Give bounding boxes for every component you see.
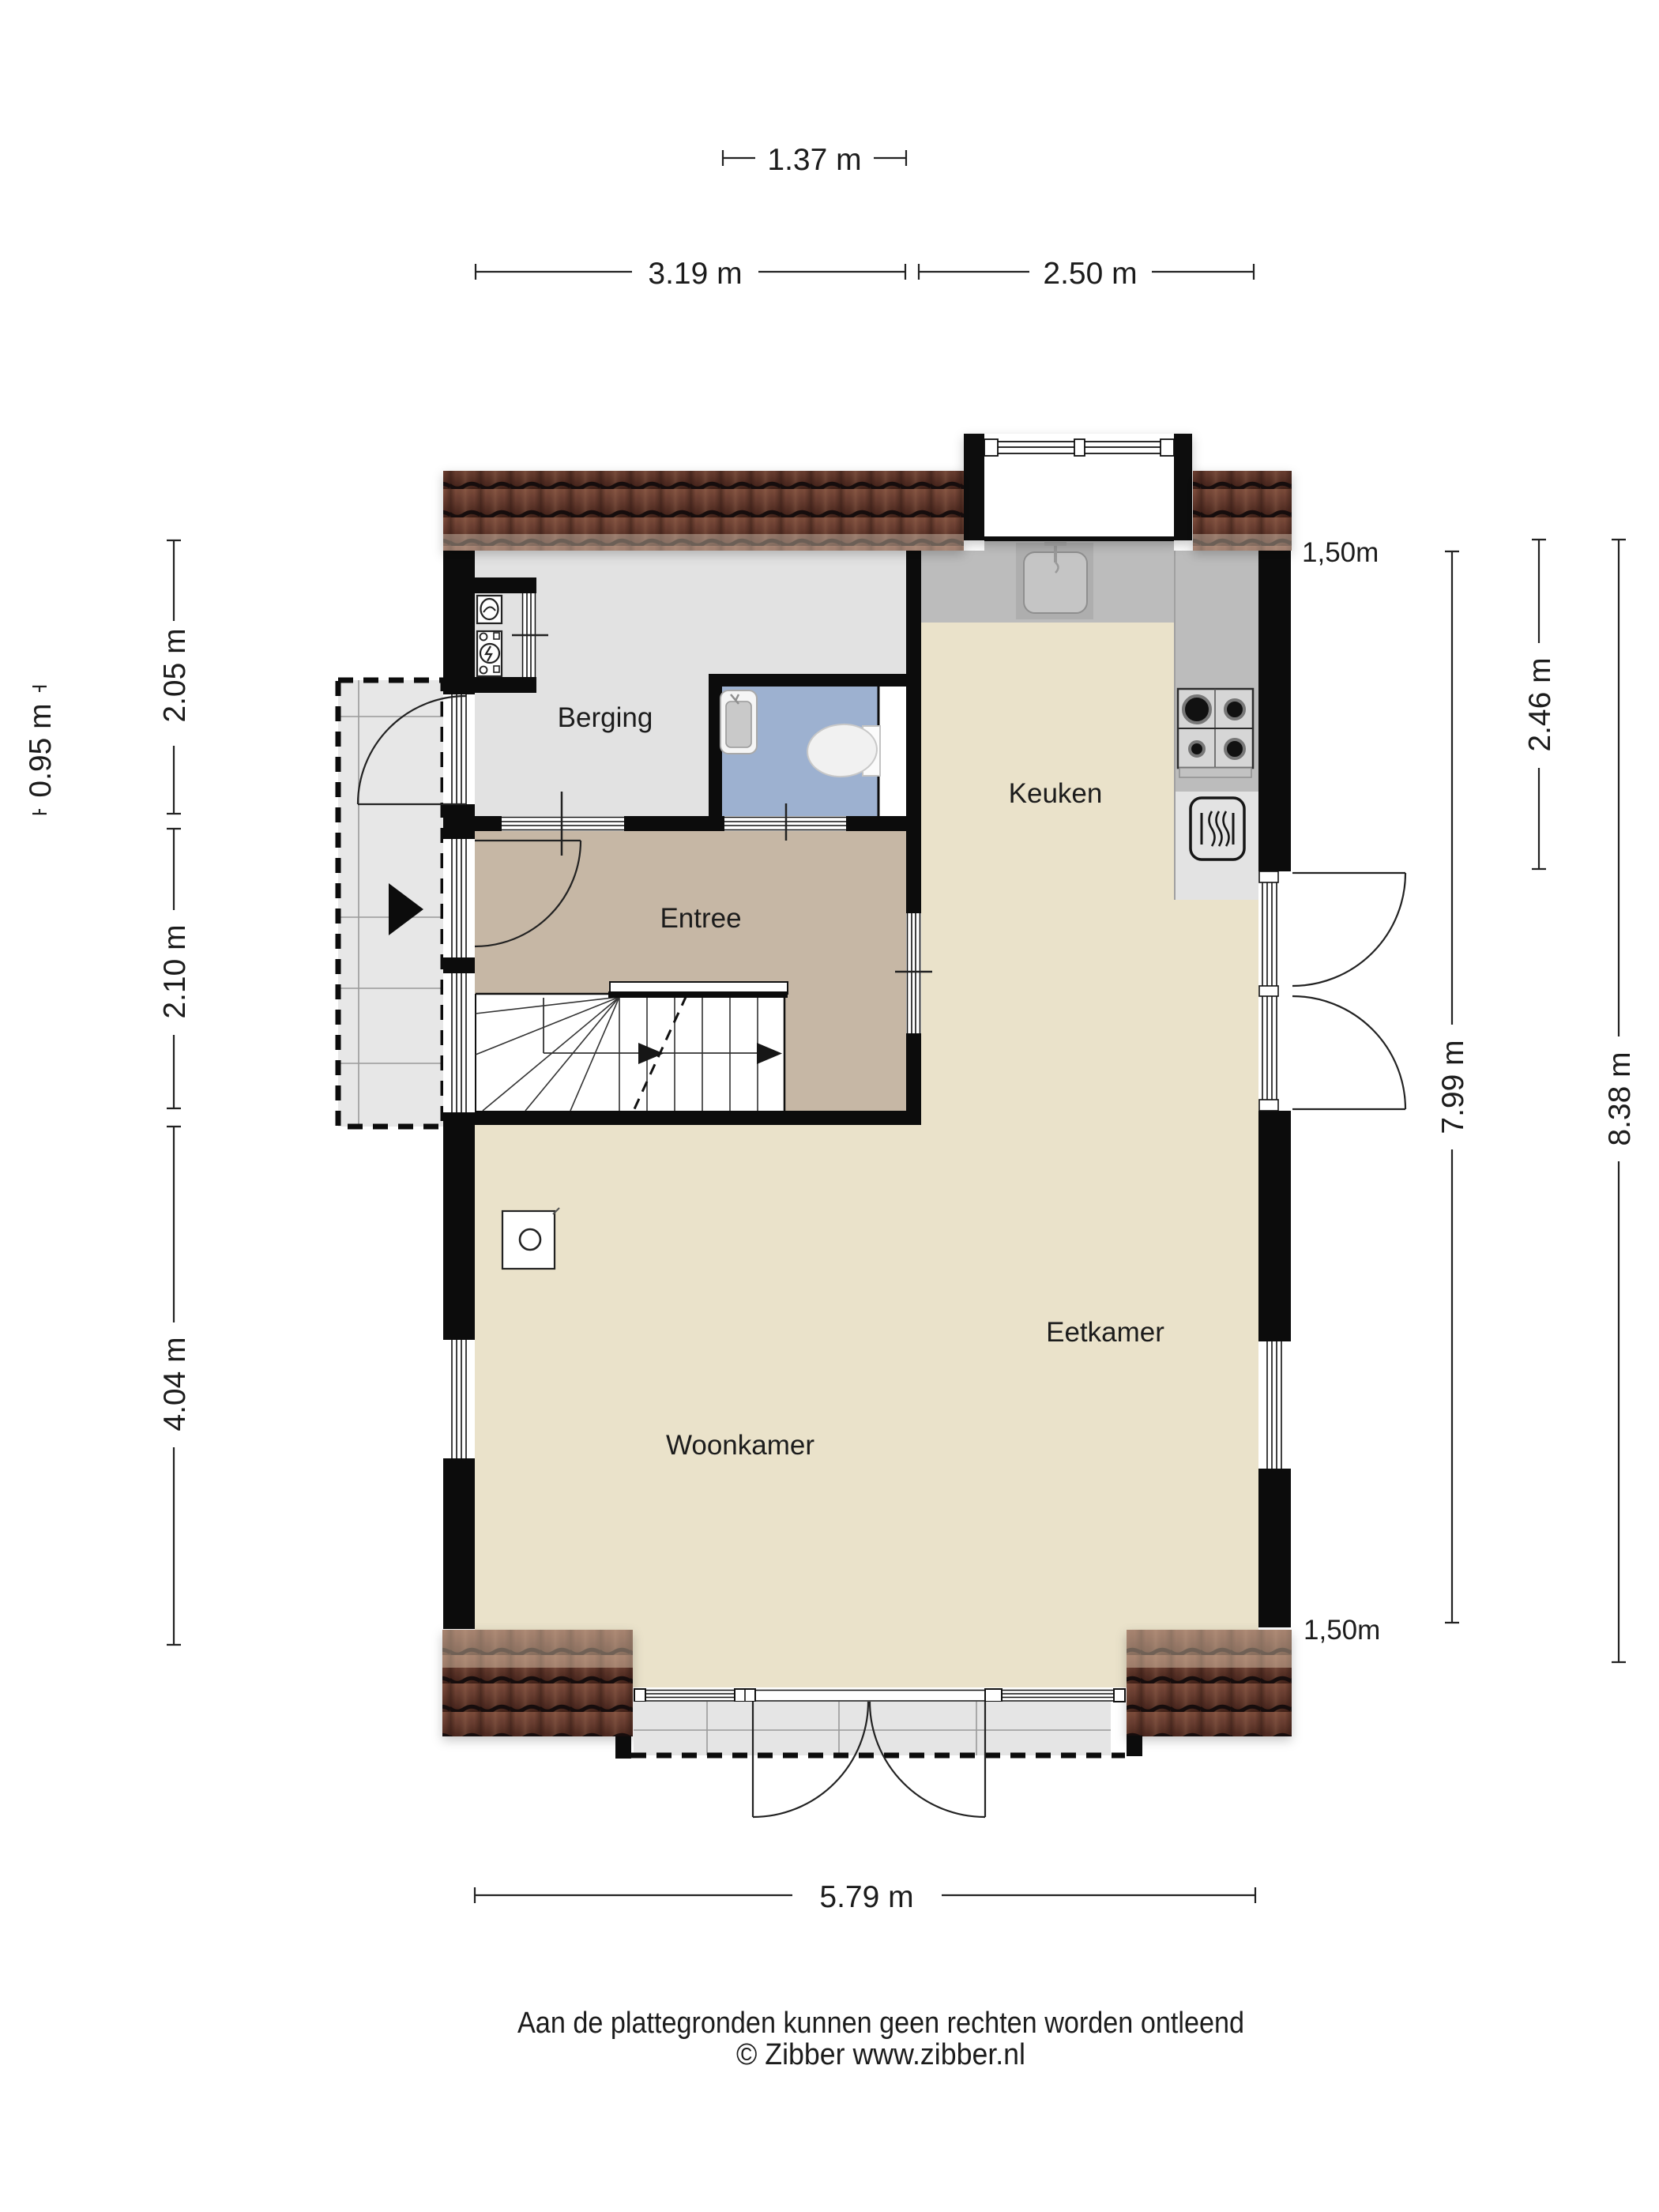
svg-text:1,50m: 1,50m [1303, 1615, 1380, 1646]
svg-text:7.99 m: 7.99 m [1436, 1040, 1470, 1134]
svg-text:3.19 m: 3.19 m [648, 257, 742, 291]
svg-text:Berging: Berging [558, 702, 653, 733]
svg-text:Woonkamer: Woonkamer [666, 1430, 814, 1461]
svg-text:2.05 m: 2.05 m [158, 628, 192, 722]
svg-text:Aan de plattegronden kunnen ge: Aan de plattegronden kunnen geen rechten… [517, 2007, 1244, 2040]
svg-text:Keuken: Keuken [1009, 778, 1103, 809]
svg-text:1,50m: 1,50m [1302, 537, 1379, 568]
svg-text:Entree: Entree [660, 903, 741, 934]
svg-text:Eetkamer: Eetkamer [1046, 1317, 1164, 1348]
svg-text:© Zibber www.zibber.nl: © Zibber www.zibber.nl [736, 2038, 1025, 2071]
svg-text:2.46 m: 2.46 m [1523, 657, 1557, 751]
svg-text:2.10 m: 2.10 m [158, 924, 192, 1018]
svg-text:5.79 m: 5.79 m [819, 1880, 913, 1914]
svg-text:8.38 m: 8.38 m [1603, 1051, 1637, 1145]
svg-text:1.37 m: 1.37 m [767, 143, 861, 177]
svg-text:4.04 m: 4.04 m [158, 1337, 192, 1431]
svg-text:0.95 m: 0.95 m [24, 703, 58, 797]
svg-text:2.50 m: 2.50 m [1043, 257, 1137, 291]
